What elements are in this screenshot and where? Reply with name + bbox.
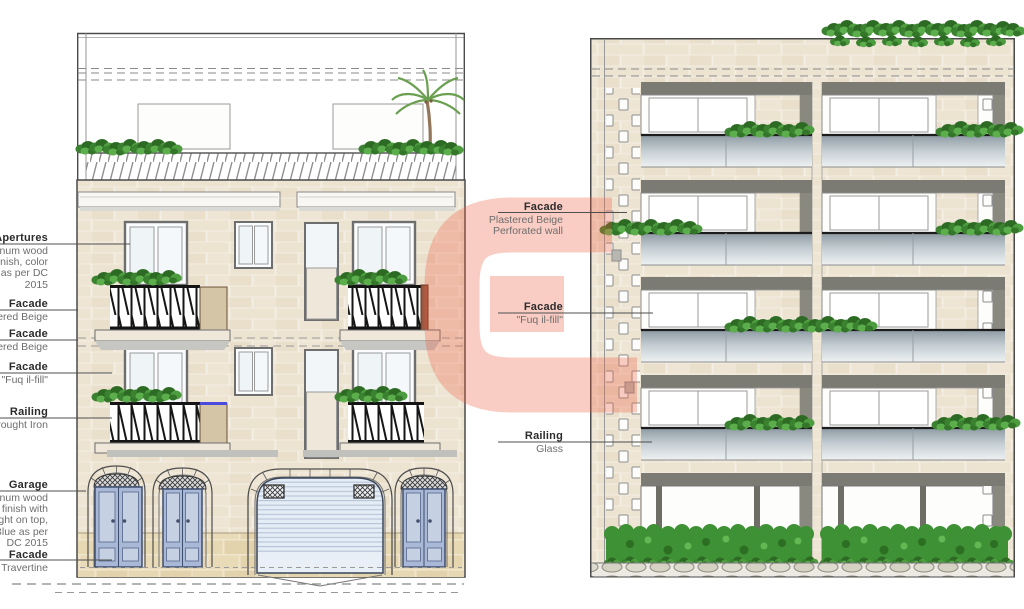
balcony-wrought-iron <box>95 285 230 350</box>
entrance-door <box>88 466 145 567</box>
annotation-title: Facade <box>0 299 48 310</box>
annotation-title: Facade <box>516 302 563 313</box>
annotation-title: Facade <box>1 550 48 561</box>
annotation-line: "Fuq il-fill" <box>516 315 563 326</box>
annotation-title: Facade <box>1 362 48 373</box>
balcony-screen-box <box>200 404 227 443</box>
hedge <box>604 524 814 564</box>
annotation-title: Facade <box>489 202 563 213</box>
annotation-title: Facade <box>0 329 48 340</box>
balcony-wrought-iron <box>95 402 230 453</box>
ground-lintel-shadow <box>107 450 278 457</box>
annotation-facade-fuq-il-fill-right: Facade "Fuq il-fill" <box>516 302 563 326</box>
annotation-title: Railing <box>525 431 563 442</box>
garage-door <box>248 469 392 575</box>
floor-module <box>641 375 1005 460</box>
annotation-line: DC 2015 <box>0 538 48 549</box>
architectural-drawing-sheet: Apertures ninum wood finish, color e as … <box>0 0 1024 609</box>
perforated-wall-pier <box>606 88 640 558</box>
annotation-line: Glass <box>525 444 563 455</box>
annotation-garage: Garage ninum wood e finish with light on… <box>0 480 48 549</box>
glass-balustrade <box>641 428 1005 460</box>
annotation-facade-plastered-1: Facade tered Beige <box>0 299 48 323</box>
front-elevation <box>12 33 465 593</box>
annotation-line: Perforated wall <box>489 226 563 237</box>
balcony-screen-box <box>200 287 227 330</box>
annotation-line: 2015 <box>0 280 48 291</box>
roof-dashed-lines <box>78 69 464 81</box>
blue-trim <box>200 402 227 405</box>
annotation-title: Garage <box>0 480 48 491</box>
glass-balustrade <box>641 233 1005 265</box>
rubble-stone-base <box>592 563 1014 577</box>
elevation-drawing-canvas <box>0 0 1024 609</box>
window-small <box>235 222 272 268</box>
annotation-apertures: Apertures ninum wood finish, color e as … <box>0 233 48 291</box>
cornice <box>78 192 455 211</box>
annotation-facade-travertine: Facade Travertine <box>1 550 48 574</box>
annotation-line: tered Beige <box>0 312 48 323</box>
annotation-railing-glass: Railing Glass <box>525 431 563 455</box>
terrace-door <box>305 223 338 320</box>
annotation-title: Apertures <box>0 233 48 244</box>
annotation-line: Wrought Iron <box>0 420 48 431</box>
glass-balustrade <box>641 330 1005 362</box>
glass-balustrade <box>641 135 1005 167</box>
penthouse-volume-left <box>138 104 230 149</box>
annotation-line: e as per DC <box>0 268 48 279</box>
annotation-title: Railing <box>0 407 48 418</box>
roof-louver-screen <box>86 153 456 180</box>
ground-lintel-shadow <box>303 450 457 457</box>
terrace-door <box>305 350 338 458</box>
window-small <box>235 348 272 395</box>
annotation-facade-perforated: Facade Plastered Beige Perforated wall <box>489 202 563 237</box>
annotation-railing-wrought-iron: Railing Wrought Iron <box>0 407 48 431</box>
annotation-line: light on top, <box>0 515 48 526</box>
annotation-line: "Fuq il-fill" <box>1 375 48 386</box>
annotation-facade-plastered-2: Facade tered Beige <box>0 329 48 353</box>
annotation-facade-fuq-il-fill: Facade "Fuq il-fill" <box>1 362 48 386</box>
entrance-door <box>395 468 453 567</box>
side-elevation <box>591 20 1024 577</box>
annotation-line: Travertine <box>1 563 48 574</box>
annotation-line: tered Beige <box>0 342 48 353</box>
